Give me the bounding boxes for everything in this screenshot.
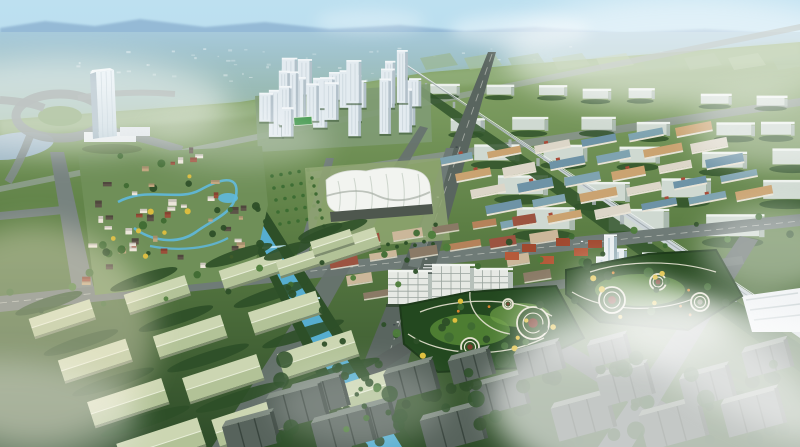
cloud-wisp-left bbox=[315, 10, 425, 34]
haze-left-2 bbox=[150, 114, 330, 166]
old-town-pond bbox=[218, 193, 238, 203]
mist-bottom-center bbox=[275, 363, 445, 447]
aerial-masterplan-rendering: Aerial perspective architectural renderi… bbox=[0, 0, 800, 447]
scene-canvas bbox=[0, 0, 800, 447]
cloud-wisp-center bbox=[450, 14, 590, 46]
